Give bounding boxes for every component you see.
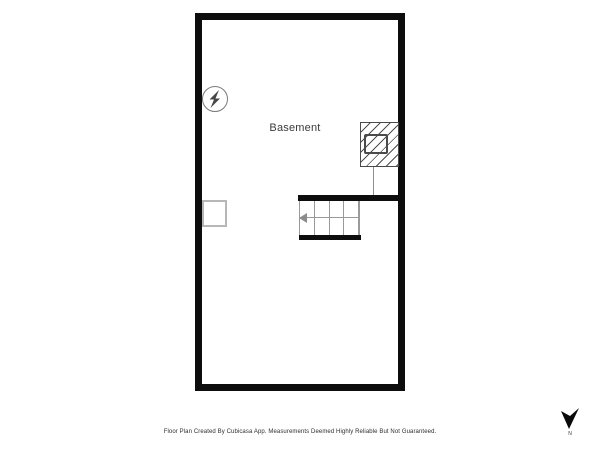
stair-tread	[315, 201, 330, 235]
north-label: N	[558, 431, 582, 437]
fireplace-icon	[360, 122, 399, 167]
appliance-rect-icon	[202, 200, 227, 227]
stair-tread	[344, 201, 358, 235]
floorplan-canvas: Basement Floor Plan Created By Cubicasa …	[0, 0, 600, 450]
electrical-symbol-icon	[202, 86, 228, 112]
stair-direction-line	[300, 217, 359, 218]
room-label: Basement	[255, 121, 335, 136]
north-arrow: N	[558, 407, 582, 437]
disclaimer-text: Floor Plan Created By Cubicasa App. Meas…	[0, 429, 600, 435]
lightning-bolt-icon	[203, 87, 227, 111]
north-arrow-icon	[560, 407, 580, 430]
fireplace-inner-box	[364, 134, 388, 154]
stair-direction-arrow-icon	[299, 213, 307, 223]
stair-tread	[330, 201, 345, 235]
staircase	[299, 201, 360, 235]
fireplace-connector-line	[373, 167, 374, 195]
staircase-bottom-edge	[299, 235, 361, 240]
